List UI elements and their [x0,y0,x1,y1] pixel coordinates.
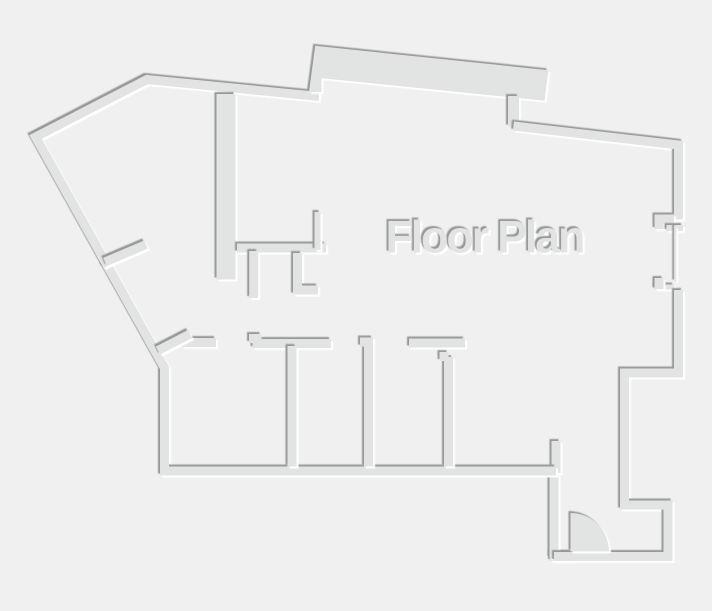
svg-text:Floor Plan: Floor Plan [386,212,586,263]
